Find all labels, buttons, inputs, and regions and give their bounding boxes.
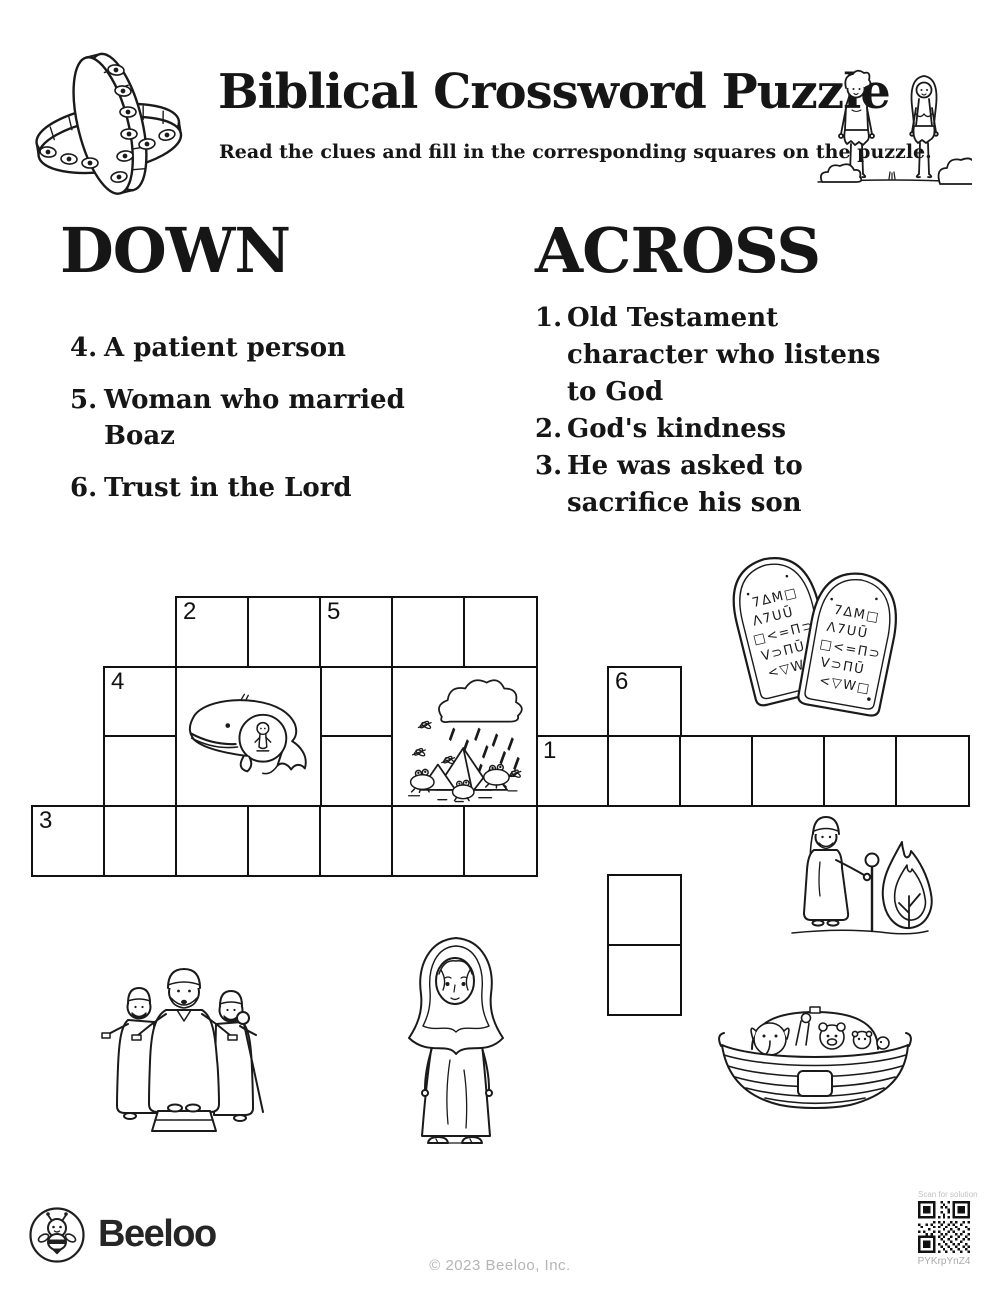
beeloo-bee-logo-icon — [28, 1206, 86, 1264]
grid-cell[interactable] — [319, 805, 394, 877]
grid-cell[interactable] — [175, 805, 250, 877]
grid-cell[interactable] — [247, 805, 322, 877]
grid-cell[interactable]: 3 — [31, 805, 106, 877]
grid-cell[interactable] — [463, 805, 538, 877]
grid-cell[interactable] — [607, 735, 682, 807]
grid-cell[interactable] — [895, 735, 970, 807]
grid-cell[interactable] — [103, 805, 178, 877]
grid-cell-number: 5 — [327, 598, 340, 626]
grid-cell[interactable] — [679, 735, 754, 807]
grid-cell[interactable] — [751, 735, 826, 807]
grid-cell[interactable] — [247, 596, 322, 668]
grid-cell-number: 2 — [183, 598, 196, 626]
grid-cell-number: 6 — [615, 668, 628, 696]
grid-cell[interactable] — [103, 735, 178, 807]
ten-commandments-tablets-illustration: 7ΔM□ Λ7UŪ □<=Π⊃ V⊃ΠŪ <▽W□ 7ΔM□ Λ7UŪ □<=Π… — [712, 543, 912, 720]
grid-cell[interactable]: 1 — [535, 735, 610, 807]
grid-cell[interactable] — [463, 596, 538, 668]
plagues-of-egypt-grid-image — [391, 666, 538, 808]
grid-cell-number: 1 — [543, 737, 556, 765]
qr-code — [918, 1201, 970, 1253]
grid-cell[interactable]: 5 — [319, 596, 394, 668]
noahs-ark-illustration — [710, 995, 920, 1120]
grid-cell[interactable] — [607, 944, 682, 1016]
grid-cell-number: 4 — [111, 668, 124, 696]
worksheet-page: Biblical Crossword Puzzle Read the clues… — [0, 0, 1000, 1294]
grid-cell[interactable]: 4 — [103, 666, 178, 738]
grid-cell[interactable] — [391, 596, 466, 668]
qr-scan-label: Scan for solution — [918, 1190, 978, 1199]
qr-code-id: PYKrpYnZ4 — [906, 1256, 982, 1267]
copyright-text: © 2023 Beeloo, Inc. — [0, 1257, 1000, 1274]
beeloo-wordmark: Beeloo — [98, 1213, 216, 1256]
jonah-whale-grid-image — [175, 666, 322, 808]
moses-burning-bush-illustration — [780, 810, 935, 945]
grid-cell[interactable]: 2 — [175, 596, 250, 668]
grid-cell-number: 3 — [39, 807, 52, 835]
grid-cell[interactable] — [391, 805, 466, 877]
three-robed-men-illustration — [92, 952, 277, 1134]
grid-cell[interactable] — [823, 735, 898, 807]
grid-cell[interactable] — [607, 874, 682, 946]
grid-cell[interactable] — [319, 735, 394, 807]
grid-cell[interactable]: 6 — [607, 666, 682, 738]
veiled-woman-illustration — [398, 932, 516, 1154]
grid-cell[interactable] — [319, 666, 394, 738]
